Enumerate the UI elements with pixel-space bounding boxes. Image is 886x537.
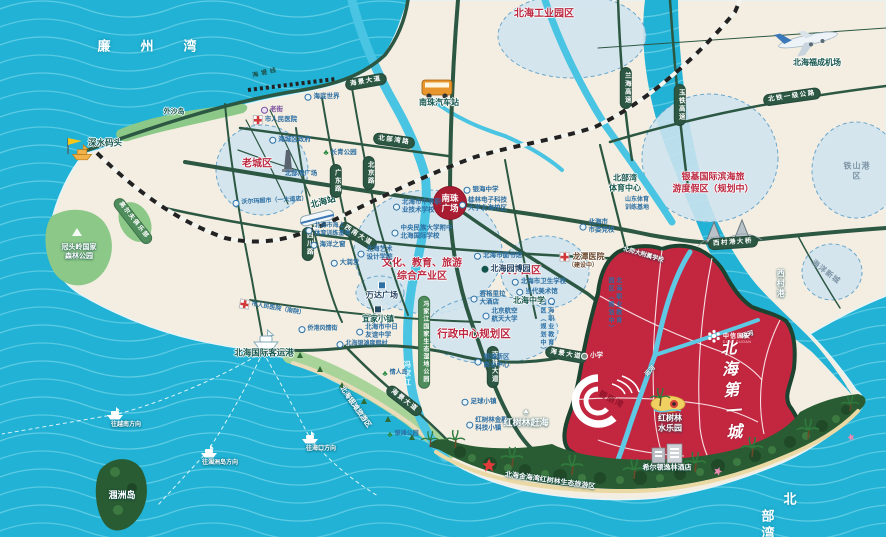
map-canvas: [0, 0, 886, 537]
nanzhu-square-label: 南珠 广场: [441, 193, 458, 213]
nanzhu-square-badge: 南珠 广场: [433, 186, 467, 220]
beihai-location-map: 廉州湾 北部湾 涠洲岛 西村港 往越南方向 往涠洲岛方向 往海口方向 深水码头 …: [0, 0, 886, 537]
